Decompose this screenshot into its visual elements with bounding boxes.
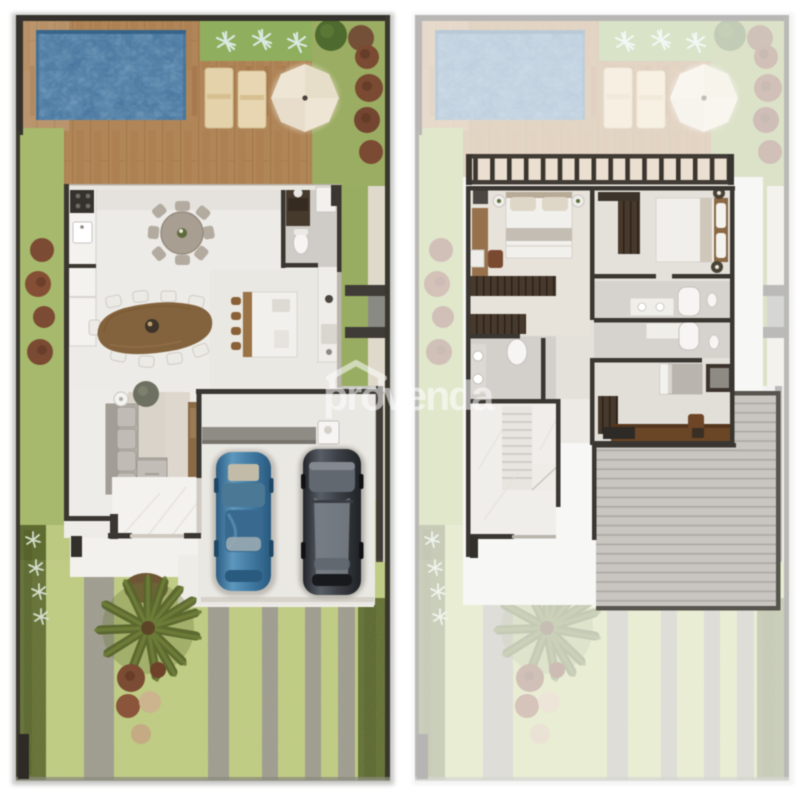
svg-text:provenda: provenda	[323, 372, 495, 419]
